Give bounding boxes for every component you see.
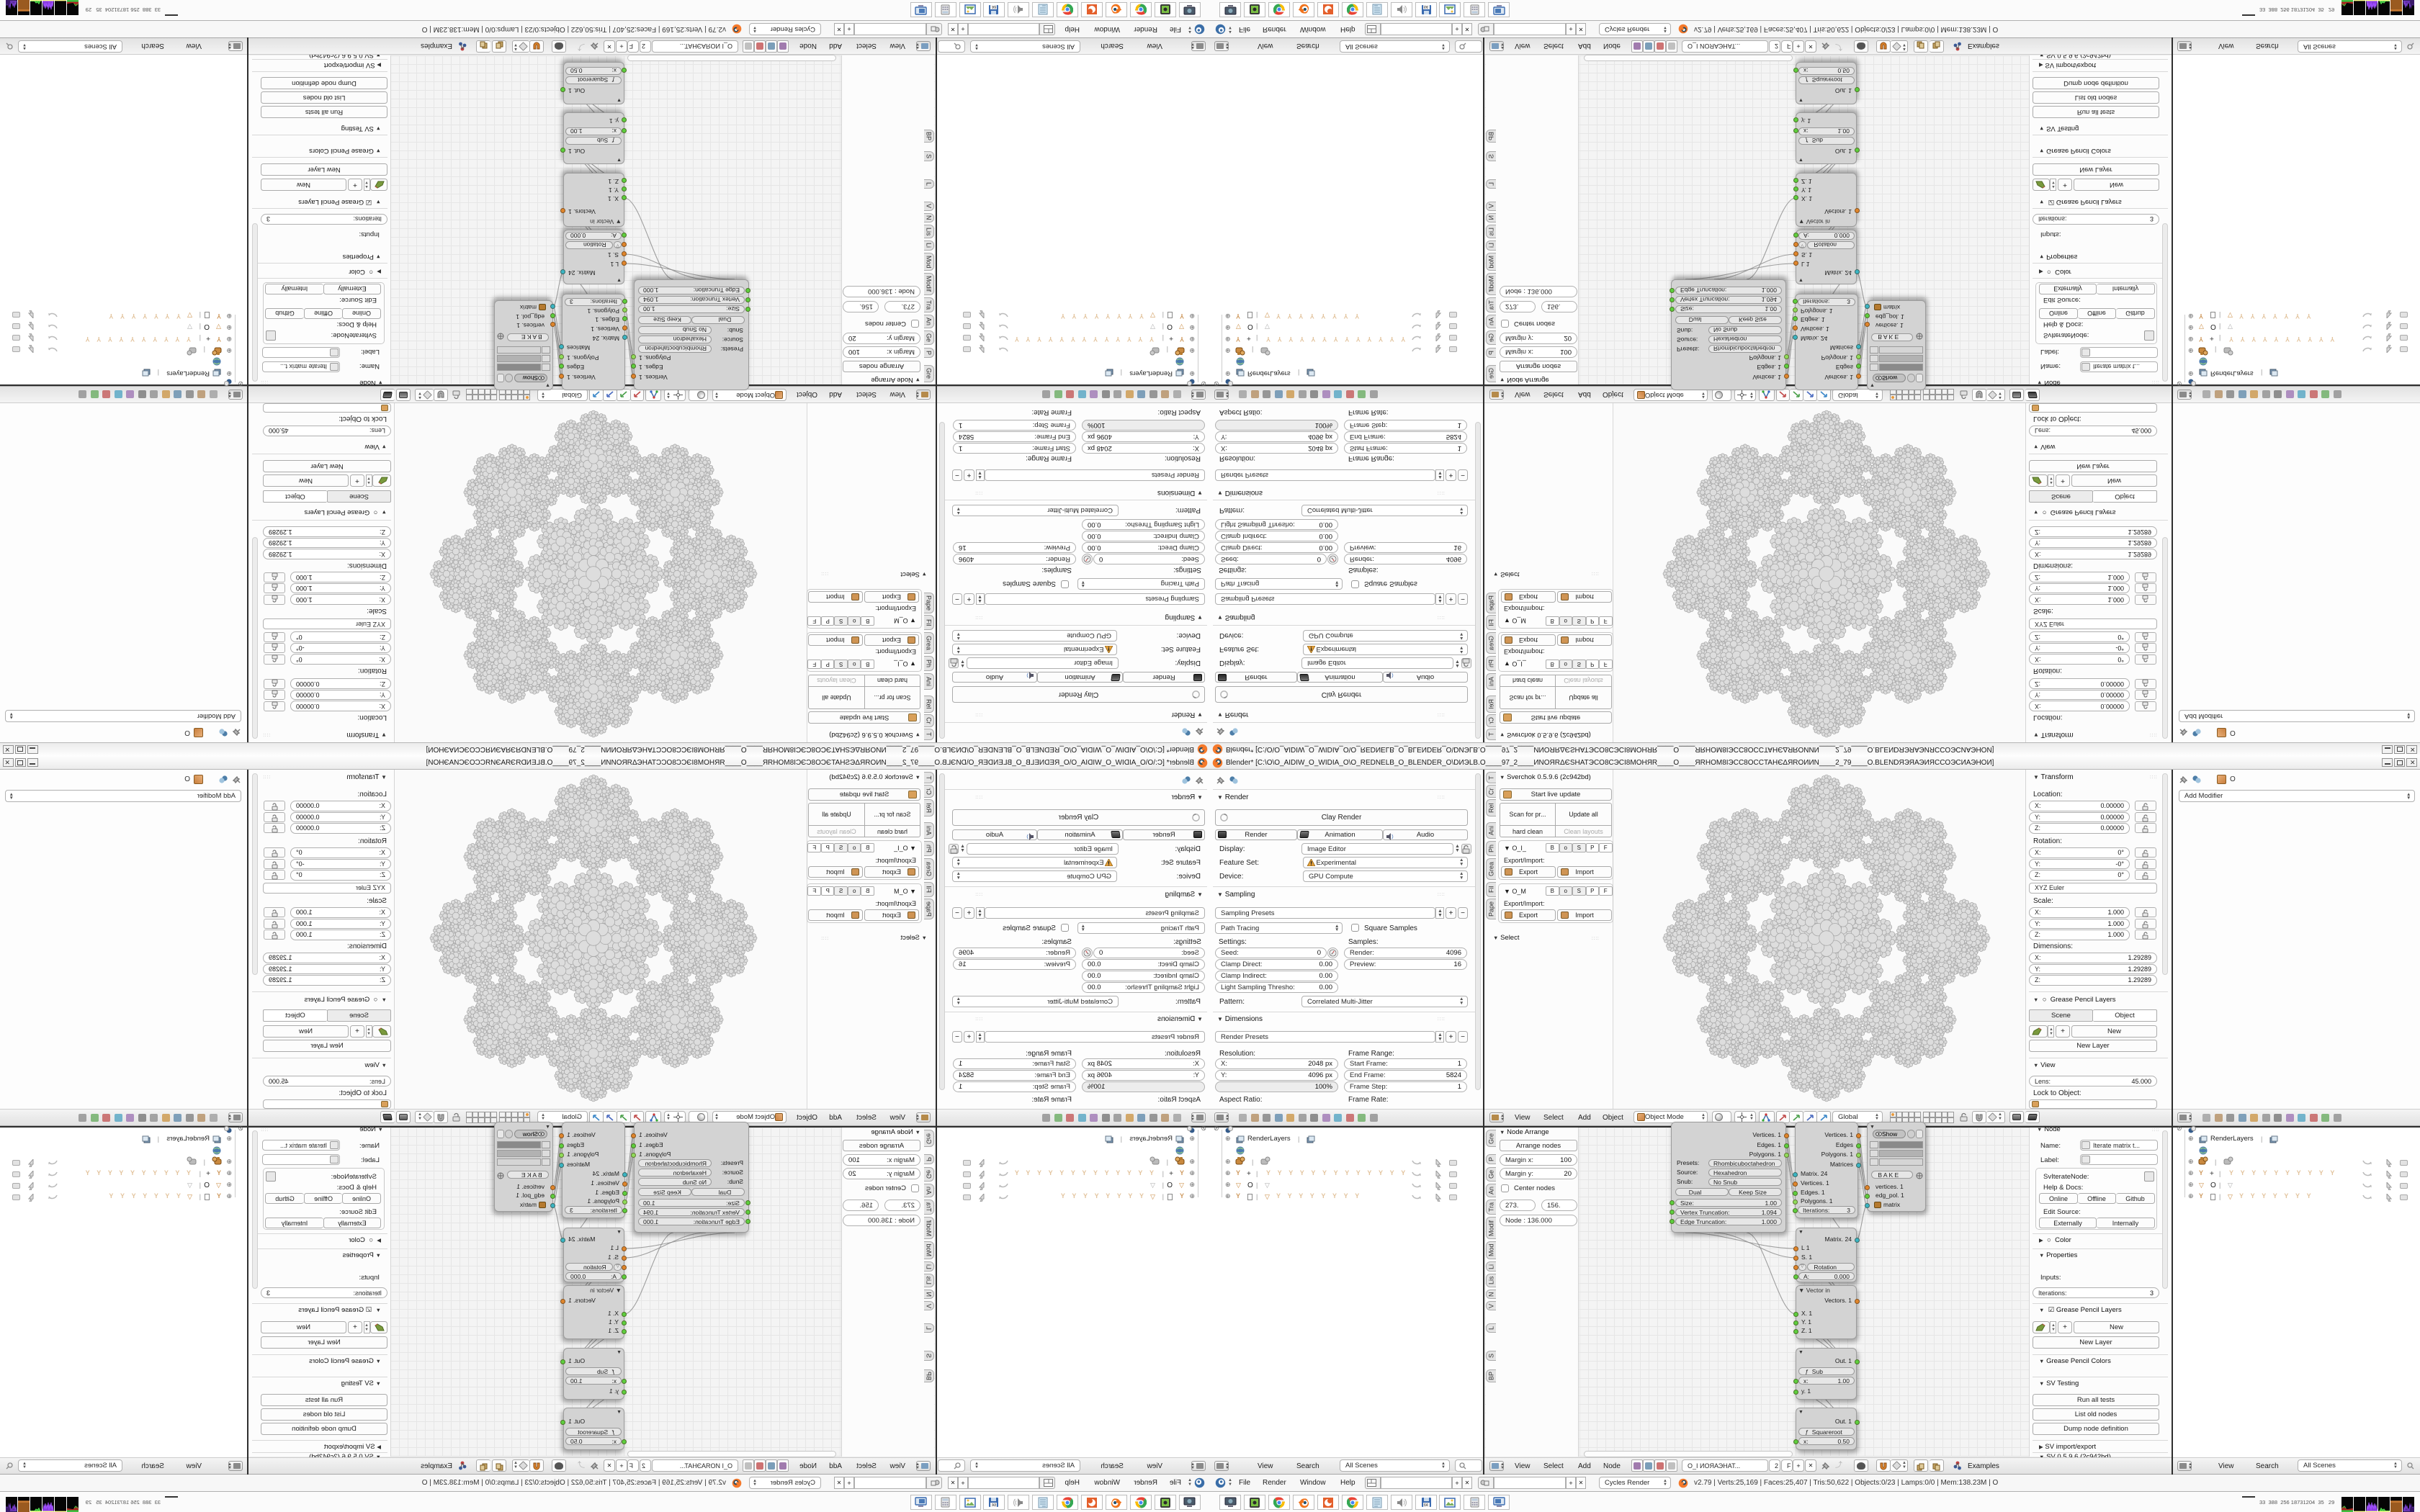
svg-text:64: 64 [992, 1503, 997, 1508]
svg-text:64: 64 [992, 4, 997, 9]
svg-text:64: 64 [1424, 1503, 1428, 1508]
svg-text:64: 64 [1424, 4, 1428, 9]
